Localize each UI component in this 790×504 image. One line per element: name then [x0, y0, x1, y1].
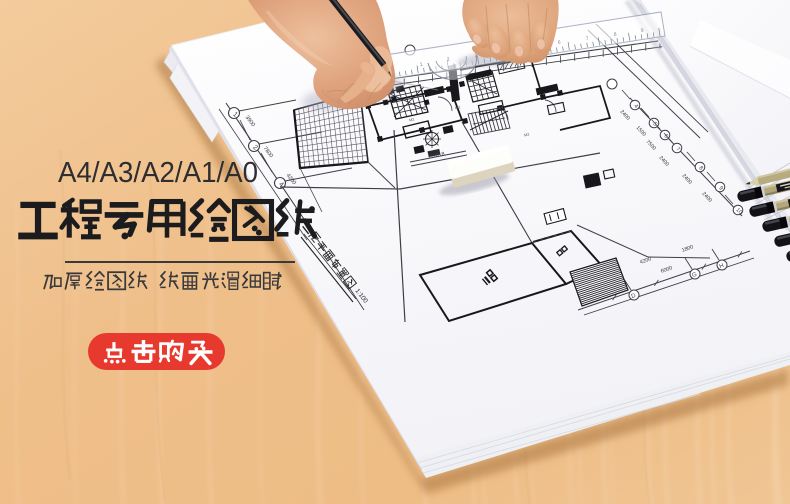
svg-text:A4/A3/A2/A1/A0: A4/A3/A2/A1/A0 [58, 157, 258, 189]
